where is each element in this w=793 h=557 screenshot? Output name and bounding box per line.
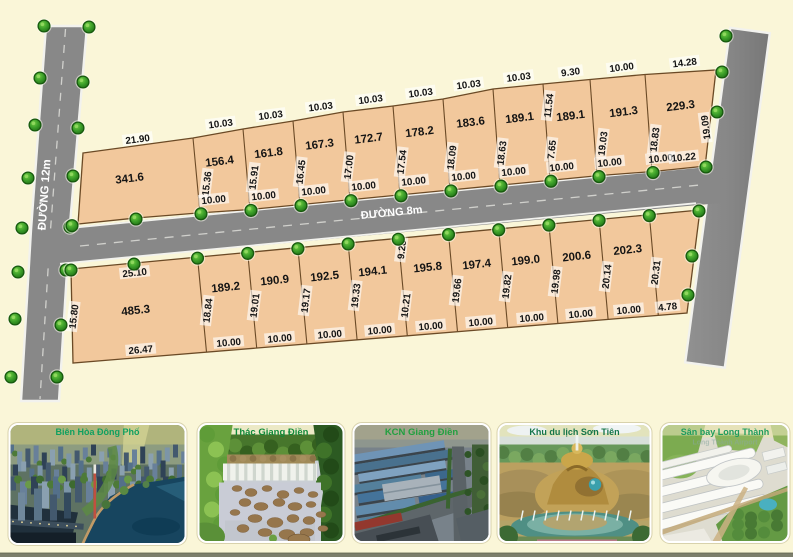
svg-text:10.00: 10.00 [216,337,242,350]
svg-text:Thác Giang Điền: Thác Giang Điền [234,427,309,438]
svg-text:26.47: 26.47 [128,344,154,357]
svg-text:10.00: 10.00 [616,304,642,317]
svg-text:Khu du lịch Sơn Tiên: Khu du lịch Sơn Tiên [529,427,619,437]
svg-text:Biên Hòa Đông Phố: Biên Hòa Đông Phố [56,427,140,437]
svg-text:10.00: 10.00 [568,308,594,321]
svg-text:10.00: 10.00 [468,316,494,329]
svg-text:Long Thành Airport: Long Thành Airport [692,440,758,447]
svg-text:10.00: 10.00 [267,333,293,346]
svg-text:KCN Giang Điền: KCN Giang Điền [385,427,459,438]
svg-text:10.00: 10.00 [418,320,444,333]
svg-text:Sân bay Long Thành: Sân bay Long Thành [681,427,770,437]
svg-text:10.00: 10.00 [317,328,343,341]
svg-text:10.00: 10.00 [519,312,545,325]
svg-text:10.00: 10.00 [367,324,393,337]
svg-text:4.78: 4.78 [658,301,679,314]
